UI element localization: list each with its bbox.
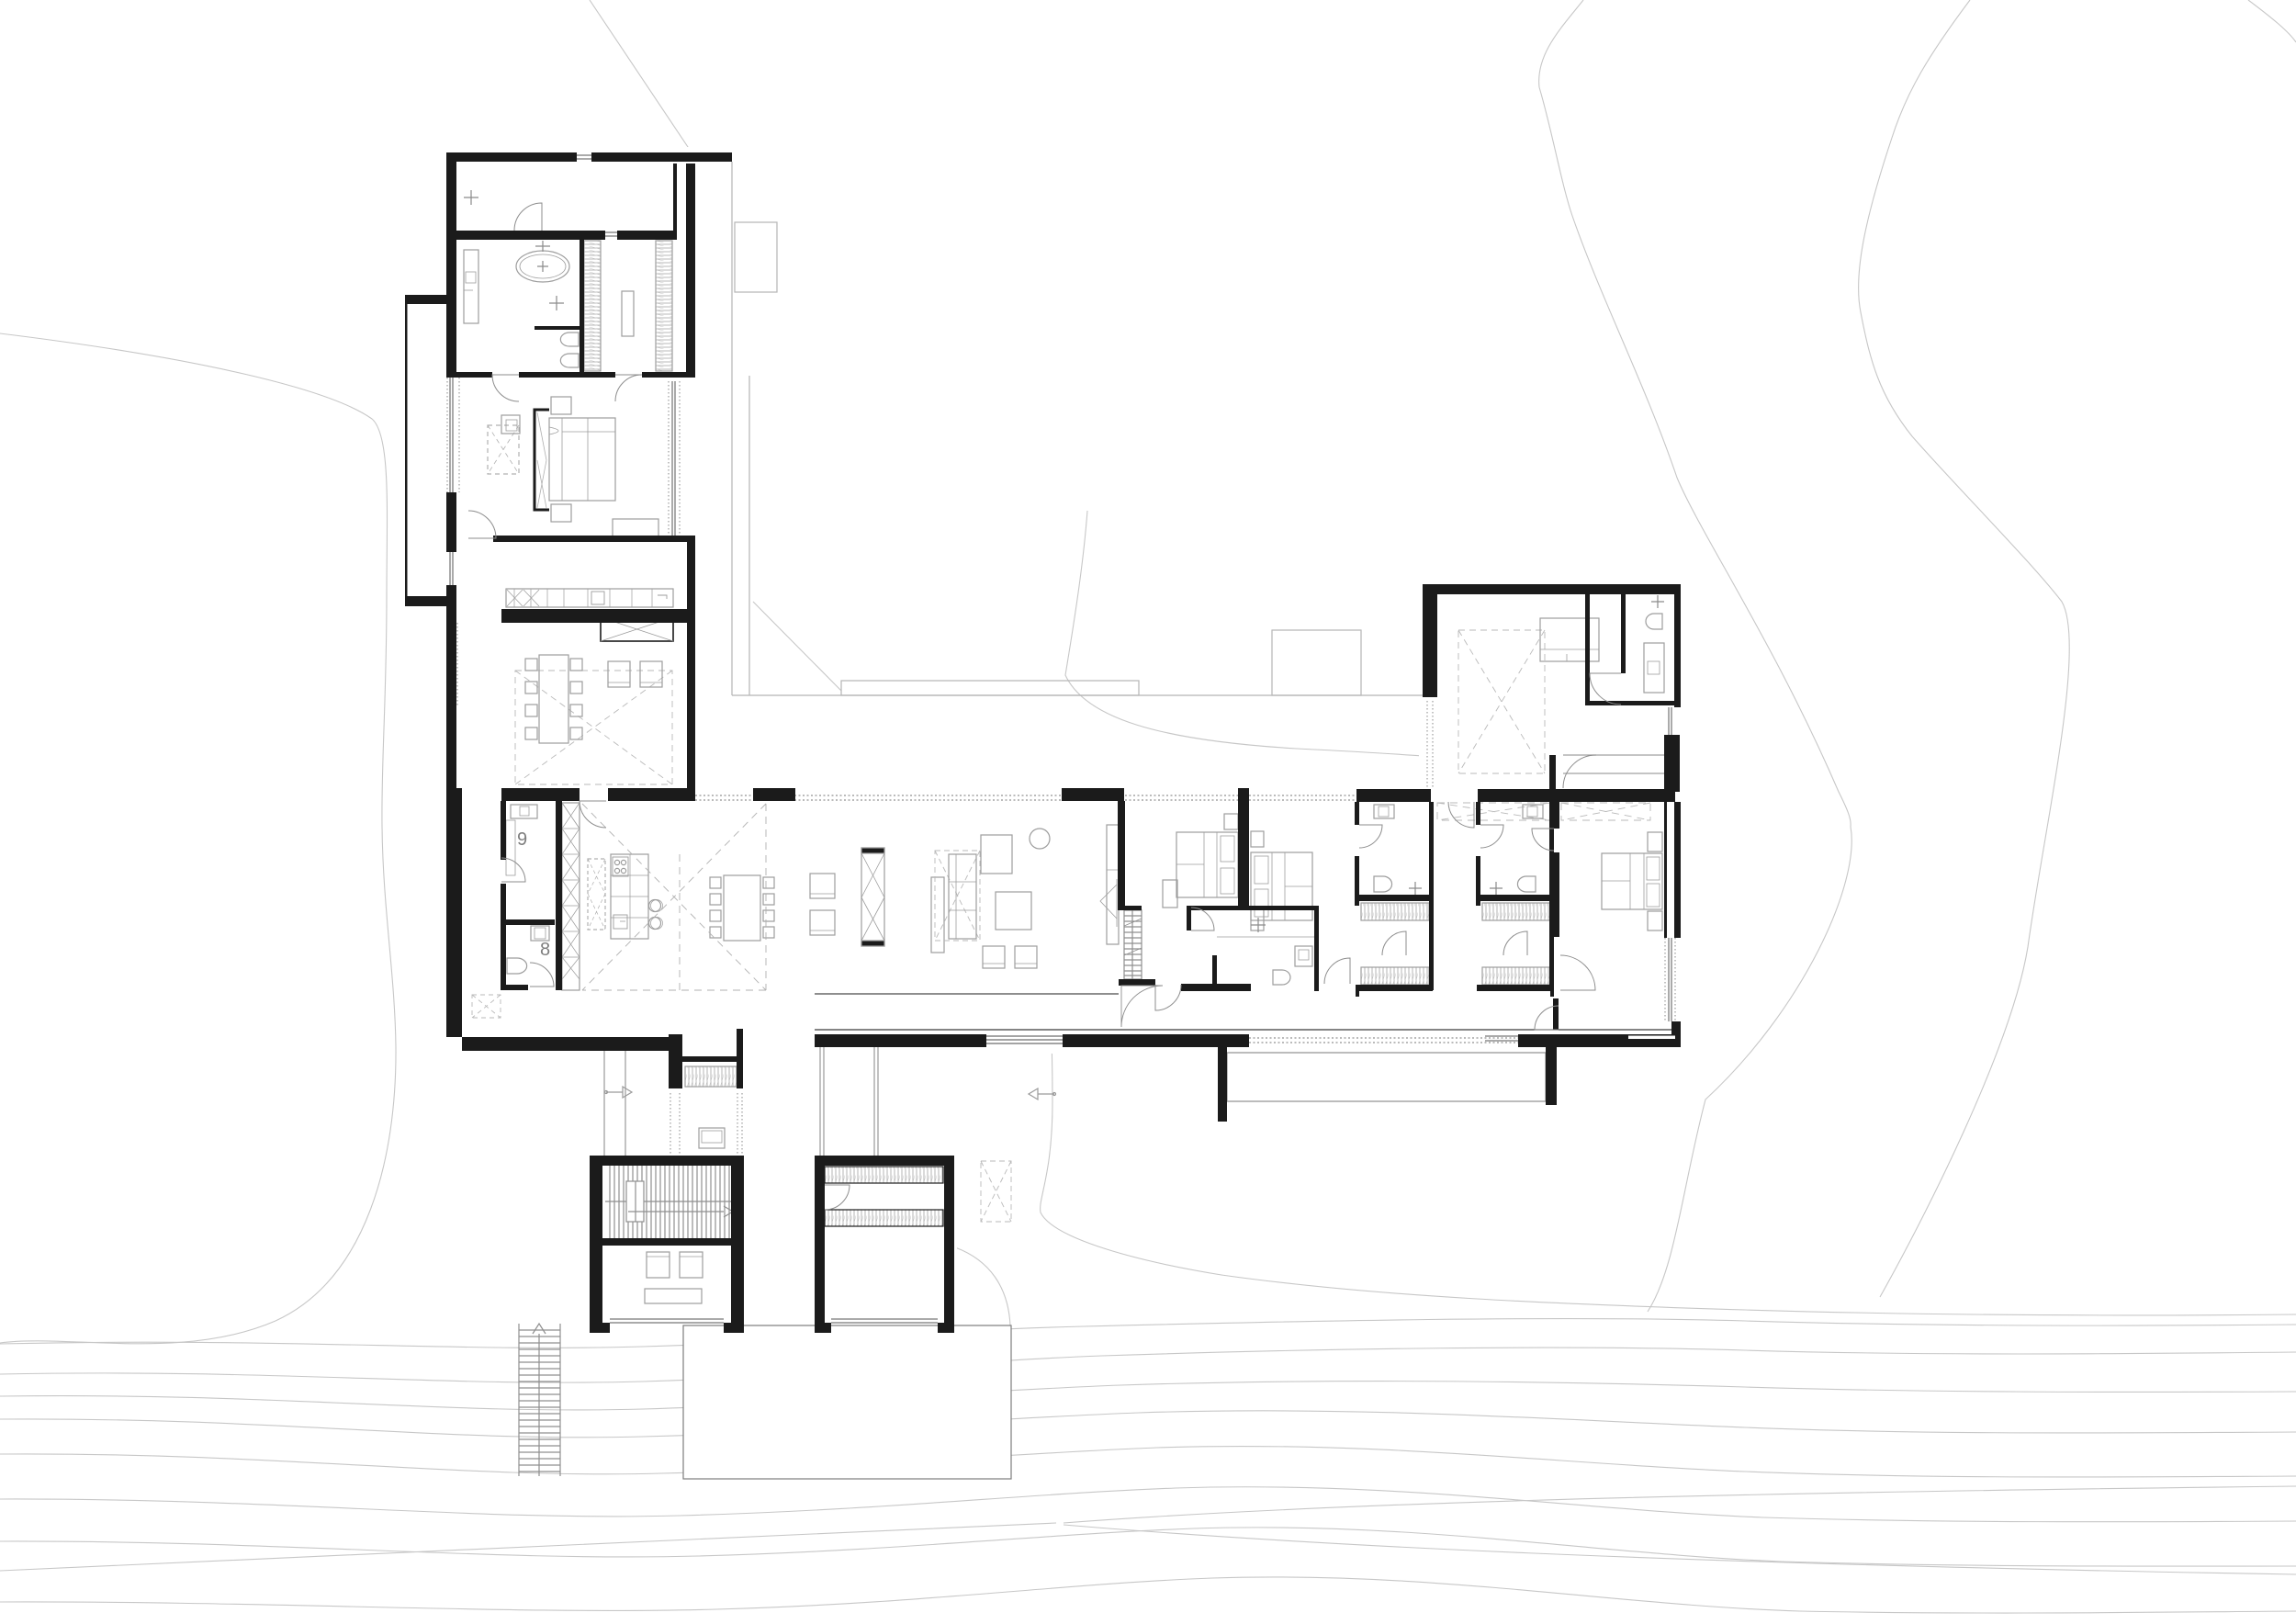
svg-text:9: 9 bbox=[517, 829, 527, 850]
svg-text:8: 8 bbox=[540, 940, 550, 960]
